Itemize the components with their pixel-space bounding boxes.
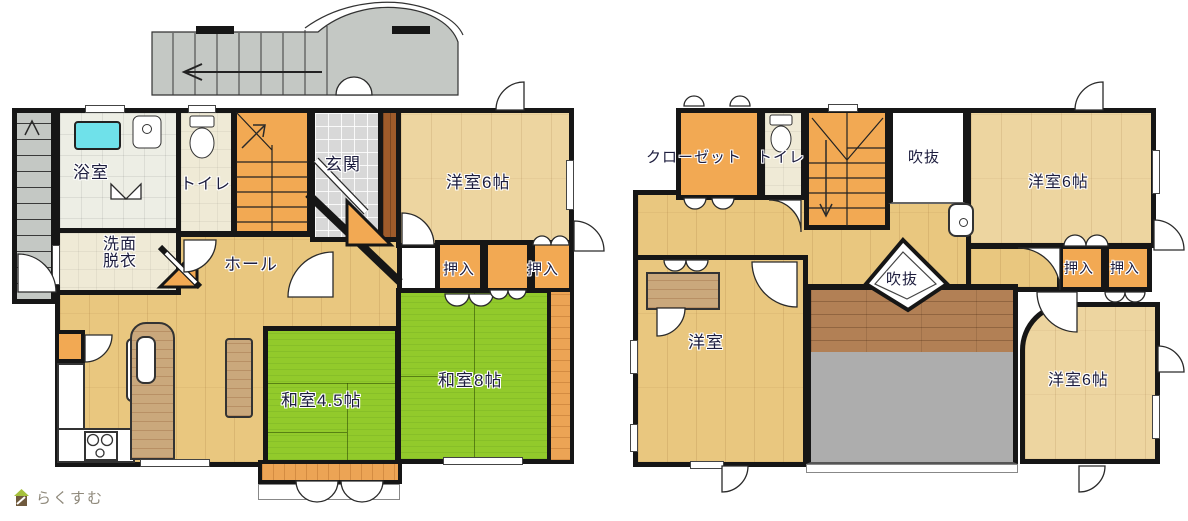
veranda-east (547, 288, 574, 464)
label-western6-1f: 洋室6帖 (446, 168, 510, 193)
window (630, 340, 638, 374)
window (828, 104, 858, 112)
label-toilet-2f: トイレ (757, 146, 805, 167)
label-western-2f: 洋室 (688, 328, 724, 353)
label-hall: ホール (224, 250, 278, 275)
entrance (310, 108, 380, 242)
kitchen-sink (136, 336, 156, 384)
window (690, 461, 724, 469)
balcony-edge (806, 464, 1018, 473)
sink-2f (948, 203, 974, 237)
label-japanese8: 和室8帖 (438, 366, 502, 391)
window (1152, 395, 1160, 439)
window (566, 160, 574, 210)
bathtub (74, 121, 121, 150)
label-washroom-2: 脱衣 (103, 247, 137, 271)
closet-in-western-2f (646, 272, 720, 310)
window (52, 245, 60, 285)
label-toilet-1f: トイレ (180, 170, 231, 194)
label-closet-2f: クローゼット (646, 146, 742, 167)
label-oshiire-2f-a: 押入 (1064, 258, 1094, 278)
window (1152, 150, 1160, 194)
label-oshiire-1f-b: 押入 (527, 258, 559, 279)
porch-south (258, 484, 400, 500)
window (630, 424, 638, 452)
stairs-2f (804, 108, 890, 230)
kitchen-cabinet-2 (225, 338, 253, 418)
approach-slope (152, 2, 463, 95)
floorplan-canvas: 浴室 洗面 脱衣 トイレ 玄関 洋室6帖 ホール 押入 押入 和室4.5帖 和室… (0, 0, 1188, 521)
window (443, 457, 523, 465)
label-western6-2f-se: 洋室6帖 (1048, 366, 1109, 390)
window (85, 105, 125, 113)
window (140, 459, 210, 467)
balcony-deck-2f (806, 288, 1018, 354)
house-icon (12, 488, 31, 507)
balcony-roof-2f (806, 352, 1018, 464)
watermark: らくすむ (12, 487, 104, 508)
stairs-1f (232, 108, 312, 236)
exterior-stairs (12, 108, 56, 304)
window (188, 105, 216, 113)
label-void-top: 吹抜 (908, 146, 940, 167)
label-bathroom: 浴室 (73, 158, 109, 183)
label-oshiire-1f-a: 押入 (443, 258, 475, 279)
kitchen-cabinet-orange (55, 330, 85, 363)
stove (84, 431, 118, 461)
veranda-south (258, 460, 402, 484)
label-oshiire-2f-b: 押入 (1110, 258, 1140, 278)
label-entrance: 玄関 (325, 150, 361, 175)
label-japanese45: 和室4.5帖 (281, 386, 362, 411)
approach-arrow (184, 64, 322, 80)
label-void-center: 吹抜 (886, 268, 918, 289)
watermark-text: らくすむ (36, 487, 104, 508)
label-western6-2f-ne: 洋室6帖 (1028, 168, 1089, 192)
